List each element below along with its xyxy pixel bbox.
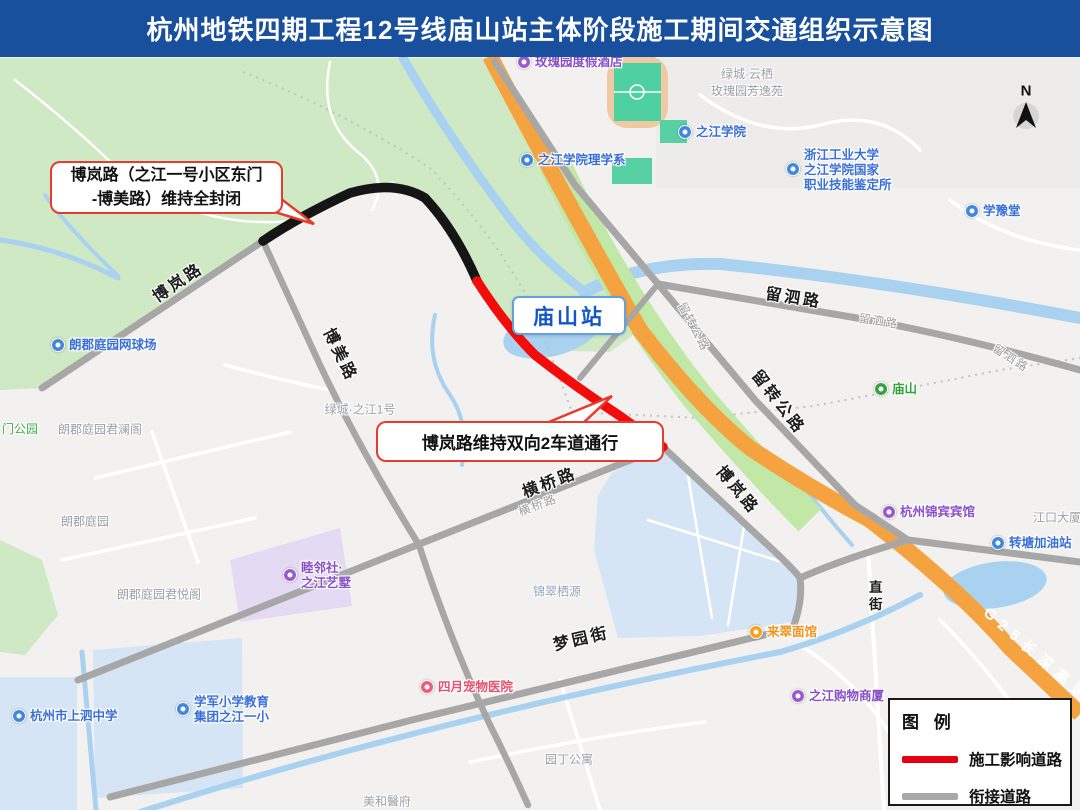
shopping-icon [791,689,805,703]
shangsi-school-zone [0,677,77,810]
area-langjun-junlan: 朗郡庭园君澜阁 [58,421,142,438]
closure-callout: 博岚路（之江一号小区东门 -博美路）维持全封闭 [50,161,283,214]
poi-mulin-community: 睦邻社· 之江艺墅 [283,561,351,591]
legend-gray-line [902,793,958,800]
poi-miaoshan: 庙山 [874,382,917,397]
area-yuanding: 园丁公寓 [545,751,593,768]
poi-xuejun-school: 学军小学教育 集团之江一小 [176,695,269,725]
restaurant-icon [749,625,763,639]
poi-xueyutang: 学豫堂 [965,204,1021,219]
poi-skill-center: 浙江工业大学 之江学院国家 职业技能鉴定所 [786,148,892,193]
hotel-icon [517,55,531,69]
area-langjun: 朗郡庭园 [61,513,109,530]
station-box: 庙山站 [512,296,626,335]
road-label-zhijie: 直街 [869,580,886,614]
institute-icon [786,162,800,176]
poi-zhijiang-college: 之江学院 [678,125,746,140]
poi-jinbin-hotel: 杭州锦宾宾馆 [882,505,975,520]
station-label: 庙山站 [533,301,605,331]
area-jincui: 锦翠栖源 [533,583,581,600]
area-gate-park: 门公园 [2,420,38,437]
poi-shangsi-school: 杭州市上泗中学 [12,709,118,724]
hotel-icon [882,505,896,519]
poi-rose-hotel: 玫瑰园度假酒店 [517,55,623,70]
legend-red-line [902,756,958,763]
traffic-map: 杭州地铁四期工程12号线庙山站主体阶段施工期间交通组织示意图 博岚路 博美路 横… [0,0,1080,810]
poi-laicui-noodle: 来翠面馆 [749,625,817,640]
college-icon [678,125,692,139]
lanes-callout: 博岚路维持双向2车道通行 [376,421,664,462]
compass-label: N [1021,83,1032,100]
page-title: 杭州地铁四期工程12号线庙山站主体阶段施工期间交通组织示意图 [147,10,934,47]
mountain-icon [874,382,888,396]
legend-item-connecting: 衔接道路 [902,785,1070,807]
community-icon [283,568,297,582]
poi-tennis-court: 朗郡庭园网球场 [51,338,157,353]
area-meihe: 美和醫府 [363,793,411,810]
hall-icon [965,204,979,218]
hospital-icon [420,680,434,694]
area-langjun-junyue: 朗郡庭园君悦阁 [117,586,201,603]
school-icon [520,153,534,167]
area-rose-garden: 绿城·云栖 玫瑰园芳逸苑 [711,65,783,99]
fuel-icon [991,536,1005,550]
poi-science-dept: 之江学院理学系 [520,153,626,168]
legend-item-construction: 施工影响道路 [902,748,1070,770]
sports-icon [51,338,65,352]
title-banner: 杭州地铁四期工程12号线庙山站主体阶段施工期间交通组织示意图 [0,0,1080,57]
legend-box: 图 例 施工影响道路 衔接道路 [888,698,1072,806]
school-icon [12,709,26,723]
school-icon [176,702,190,716]
poi-gas-station: 转塘加油站 [991,536,1072,551]
area-jiangkou: 江口大厦 [1033,509,1080,526]
area-lvcheng-no1: 绿城·之江1号 [325,401,396,418]
poi-shopping-mall: 之江购物商厦 [791,689,884,704]
poi-pet-hospital: 四月宠物医院 [420,680,513,695]
legend-title: 图 例 [902,708,1070,733]
